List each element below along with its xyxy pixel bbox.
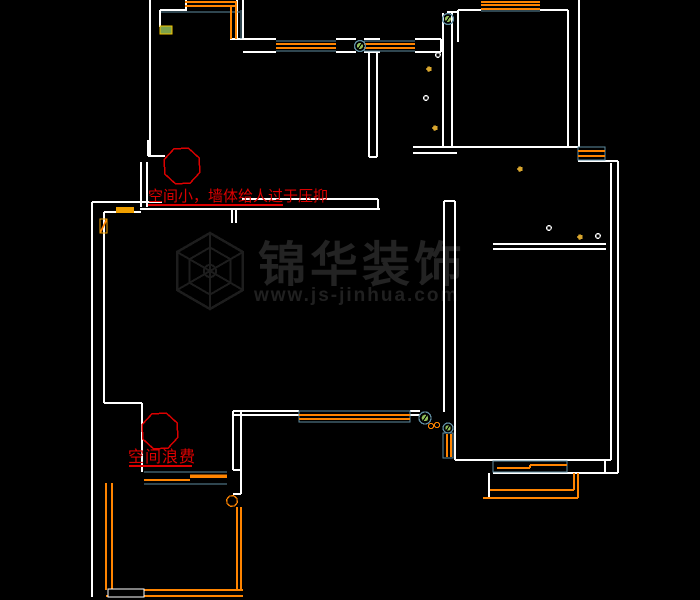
watermark: 锦华装饰 www.js-jinhua.com — [177, 233, 466, 309]
floorplan-canvas[interactable]: 锦华装饰 www.js-jinhua.com 空间小，墙体给人过于压抑 空间浪费 — [0, 0, 700, 600]
brand-logo-icon — [177, 233, 243, 309]
cad-viewport[interactable]: 锦华装饰 www.js-jinhua.com 空间小，墙体给人过于压抑 空间浪费 — [0, 0, 700, 600]
annotation-space-small-text: 空间小，墙体给人过于压抑 — [148, 188, 328, 205]
watermark-url-text: www.js-jinhua.com — [253, 285, 459, 306]
annotation-space-waste-text: 空间浪费 — [128, 448, 196, 466]
